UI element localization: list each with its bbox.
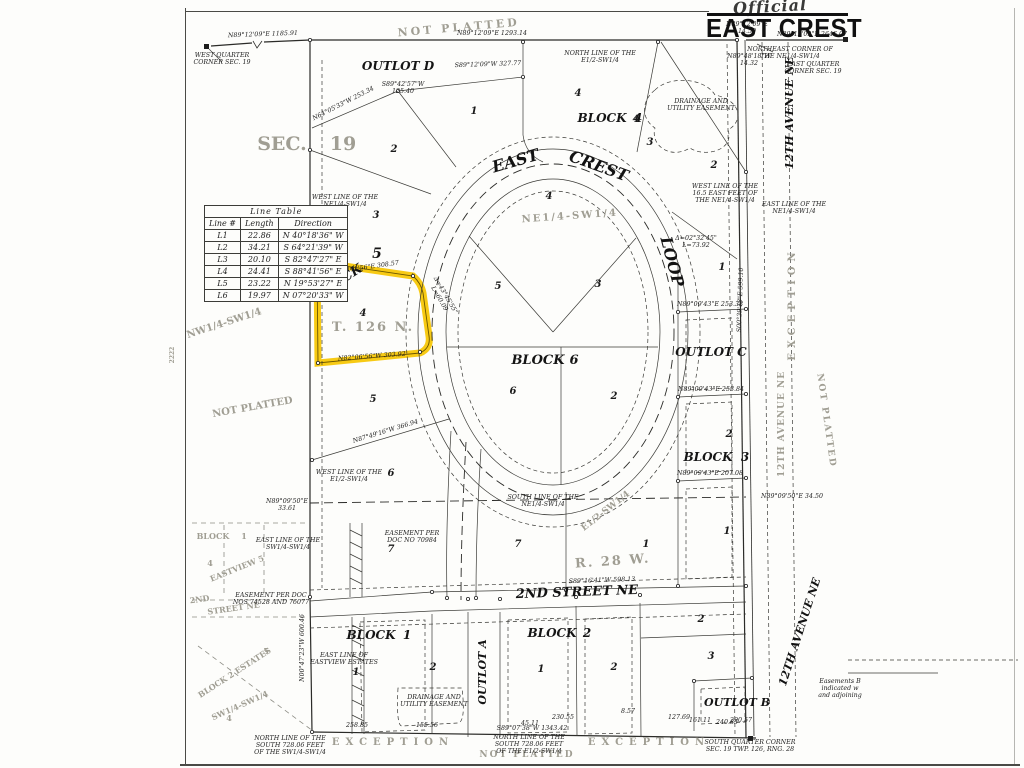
bearing: 127.69 bbox=[668, 714, 690, 721]
lot-number: 4 bbox=[575, 88, 582, 99]
sheet-edge-bottom bbox=[180, 764, 1020, 766]
block-1-label: BLOCK bbox=[345, 628, 396, 642]
note-east-quarter-corner: EAST QUARTERCORNER SEC. 19 bbox=[784, 61, 841, 75]
line-table-header: Direction bbox=[278, 218, 348, 230]
block-3-label: BLOCK bbox=[682, 450, 733, 464]
bearing: 230.55 bbox=[551, 714, 574, 721]
wm-r28w: R. 28 W. bbox=[575, 551, 651, 571]
line-table-cell: L1 bbox=[205, 230, 241, 242]
line-table-row: L122.86N 40°18'36" W bbox=[205, 230, 348, 242]
wm-19: 19 bbox=[330, 133, 356, 155]
line-table-cell: S 82°47'27" E bbox=[278, 254, 348, 266]
wm-sw14-4: 4 bbox=[226, 713, 232, 723]
lot-number: 4 bbox=[546, 191, 553, 202]
outlot-a-label: OUTLOT A bbox=[476, 639, 489, 705]
block-4-label: BLOCK bbox=[576, 111, 627, 125]
wm-t126n: T. 126 N. bbox=[332, 320, 414, 335]
bearing: N89°09'43"E 253.84 bbox=[677, 386, 744, 393]
note-easement-70984: EASEMENT PERDOC NO 70984 bbox=[384, 530, 440, 544]
wm-12th-avenue-ne-gray: 12TH AVENUE NE bbox=[777, 371, 787, 477]
bearing: Δ=02°32'45"L=73.92 bbox=[674, 235, 717, 249]
wm-not-platted-left: NOT PLATTED bbox=[212, 395, 294, 420]
lot-number: 1 bbox=[719, 262, 726, 273]
street-2nd-street-ne: 2ND STREET NE bbox=[514, 583, 639, 602]
outlot-d-label: OUTLOT D bbox=[362, 59, 435, 73]
bearing: S89°12'09"W 327.77 bbox=[455, 60, 522, 69]
wm-ne14-sw14: NE1/4-SW1/4 bbox=[521, 208, 618, 226]
bearing: 258.85 bbox=[345, 722, 368, 729]
line-table-cell: L2 bbox=[205, 242, 241, 254]
lot-number: 4 bbox=[360, 308, 367, 319]
line-table-cell: 22.86 bbox=[241, 230, 279, 242]
wm-2222: 2222 bbox=[169, 347, 176, 364]
line-table-title-row: Line Table bbox=[205, 206, 348, 218]
lot-number: 1 bbox=[724, 526, 731, 537]
outlot-c-label: OUTLOT C bbox=[675, 345, 747, 359]
line-table-cell: L3 bbox=[205, 254, 241, 266]
bearing: N64°05'33"W 253.34 bbox=[311, 85, 376, 122]
lot-number: 2 bbox=[710, 160, 718, 171]
block-1-number: 1 bbox=[403, 628, 411, 642]
note-east-line-eastview: EAST LINE OFEASTVIEW ESTATES bbox=[309, 652, 379, 666]
lot-number: 5 bbox=[370, 394, 377, 405]
line-table-cell: 34.21 bbox=[241, 242, 279, 254]
line-table-cell: 23.22 bbox=[241, 278, 279, 290]
street-centerlines bbox=[310, 164, 746, 600]
lot-number: 2 bbox=[610, 662, 618, 673]
line-table-cell: S 88°41'56" E bbox=[278, 266, 348, 278]
note-west-quarter-corner: WEST QUARTERCORNER SEC. 19 bbox=[193, 52, 250, 66]
block-2-number: 2 bbox=[582, 626, 591, 640]
line-table-header-row: Line #LengthDirection bbox=[205, 218, 348, 230]
bearing: N89°09'43"E 207.08 bbox=[676, 470, 743, 477]
note-west-line-165: WEST LINE OF THE16.5 EAST FEET OFTHE NE1… bbox=[692, 183, 759, 204]
line-table-row: L619.97N 07°20'33" W bbox=[205, 290, 348, 302]
block-2-label: BLOCK bbox=[526, 626, 577, 640]
wm-e12-sw14: E1/2-SW1/4 bbox=[580, 489, 633, 533]
bearing: S89°42'57"W125.40 bbox=[382, 81, 425, 95]
lot-number: 3 bbox=[595, 279, 602, 290]
lot-number: 5 bbox=[495, 281, 502, 292]
bearing: N89°09'50"E 34.50 bbox=[760, 493, 823, 500]
wm-eastview-4: 4 bbox=[207, 558, 213, 568]
plat-title: EAST CREST bbox=[706, 13, 862, 44]
lot-number: 2 bbox=[429, 662, 437, 673]
bearing: N00°47'23"W 600.46 bbox=[299, 614, 306, 683]
wm-2nd: 2ND bbox=[189, 593, 210, 606]
line-table-row: L234.21S 64°21'39" W bbox=[205, 242, 348, 254]
wm-exception-bottom-right: EXCEPTION bbox=[588, 737, 710, 748]
line-table-row: L523.22N 19°53'27" E bbox=[205, 278, 348, 290]
note-drainage-top: DRAINAGE ANDUTILITY EASEMENT bbox=[667, 98, 736, 112]
bearing: 290.57 bbox=[729, 717, 752, 724]
bearing: N89°09'50"E33.61 bbox=[265, 498, 308, 512]
street-12th-avenue-ne-bottom: 12TH AVENUE NE bbox=[776, 576, 823, 688]
bearing: 155.56 bbox=[416, 722, 438, 729]
note-south-quarter-corner: SOUTH QUARTER CORNERSEC. 19 TWP. 126, RN… bbox=[704, 739, 795, 753]
block-5-number: 5 bbox=[372, 246, 382, 262]
bearing: 8.57 bbox=[621, 708, 635, 715]
wm-exception-right: EXCEPTION bbox=[787, 247, 798, 360]
lot-number: 4 bbox=[633, 114, 640, 125]
note-easement-74528: EASEMENT PER DOCNOS 74528 AND 76077 bbox=[232, 592, 309, 606]
block-6-label: BLOCK bbox=[510, 353, 565, 368]
line-table-cell: N 40°18'36" W bbox=[278, 230, 348, 242]
wm-block-1-number: 1 bbox=[241, 531, 247, 541]
line-table-cell: S 64°21'39" W bbox=[278, 242, 348, 254]
line-table-row: L424.41S 88°41'56" E bbox=[205, 266, 348, 278]
bearing: 161.11 bbox=[689, 717, 711, 724]
wm-sw14-sw14: SW1/4-SW1/4 bbox=[210, 688, 270, 722]
line-table-header: Length bbox=[241, 218, 279, 230]
line-table-cell: 24.41 bbox=[241, 266, 279, 278]
line-table-cell: 19.97 bbox=[241, 290, 279, 302]
note-south-line-ne14: SOUTH LINE OF THENE1/4-SW1/4 bbox=[507, 494, 578, 508]
note-west-line-e12: WEST LINE OF THEE1/2-SW1/4 bbox=[316, 469, 383, 483]
line-table-row: L320.10S 82°47'27" E bbox=[205, 254, 348, 266]
wm-block-1: BLOCK bbox=[197, 531, 231, 541]
line-table: Line TableLine #LengthDirectionL122.86N … bbox=[204, 205, 348, 302]
bearing: N89°09'43"E 253.38 bbox=[676, 301, 743, 308]
lot-number: 6 bbox=[388, 468, 395, 479]
bearing: N89°12'09"E 1185.91 bbox=[227, 30, 298, 39]
block-3-number: 3 bbox=[741, 450, 749, 464]
line-table-cell: 20.10 bbox=[241, 254, 279, 266]
lot-number: 1 bbox=[538, 664, 545, 675]
line-table-cell: N 19°53'27" E bbox=[278, 278, 348, 290]
lot-number: 2 bbox=[697, 614, 705, 625]
line-table-cell: L5 bbox=[205, 278, 241, 290]
sheet-edge-top bbox=[185, 11, 709, 12]
line-table-cell: N 07°20'33" W bbox=[278, 290, 348, 302]
wm-estates-5: 5 bbox=[263, 646, 269, 656]
bearing: S00°39'18"E 599.10 bbox=[736, 267, 745, 332]
note-easements-edge: Easements Bindicated wand adjoining bbox=[818, 678, 862, 699]
line-table-header: Line # bbox=[205, 218, 241, 230]
lot-number: 3 bbox=[708, 651, 715, 662]
lot-number: 1 bbox=[353, 667, 360, 678]
note-drainage-bottom: DRAINAGE ANDUTILITY EASEMENT bbox=[400, 694, 469, 708]
lot-number: 1 bbox=[643, 539, 650, 550]
wm-eastview: EASTVIEW 5 bbox=[208, 553, 265, 584]
line-table-cell: L6 bbox=[205, 290, 241, 302]
bearing: N89°12'09"E 1293.14 bbox=[456, 30, 527, 37]
lot-number: 6 bbox=[510, 386, 517, 397]
wm-exception-bottom-left: EXCEPTION bbox=[332, 737, 454, 748]
line-table-cell: L4 bbox=[205, 266, 241, 278]
wm-sec: SEC. bbox=[257, 133, 307, 155]
lot-number: 3 bbox=[373, 210, 380, 221]
note-north-line: NORTH LINE OF THEE1/2-SW1/4 bbox=[563, 50, 636, 64]
bearing: 45.11 bbox=[520, 720, 539, 727]
bearing: N89°48'18"W14.32 bbox=[726, 53, 771, 67]
plat-drawing: EASTCRESTLOOP2ND STREET NE12TH AVENUE NE… bbox=[0, 0, 1024, 768]
lot-number: 1 bbox=[471, 106, 478, 117]
plat-map-scan: Official EAST CREST Line TableLine #Leng… bbox=[0, 0, 1024, 768]
block-6-number: 6 bbox=[569, 353, 578, 368]
wm-nw14-sw14: NW1/4-SW1/4 bbox=[185, 306, 263, 341]
outlot-b-label: OUTLOT B bbox=[704, 696, 770, 709]
bearing: Δ=43°45'55"L=60.09 bbox=[425, 275, 458, 319]
lot-number: 2 bbox=[390, 144, 398, 155]
lot-number: 2 bbox=[610, 391, 618, 402]
wm-not-platted-right: NOT PLATTED bbox=[814, 373, 837, 469]
note-north-line-south-72806-e12: NORTH LINE OF THESOUTH 728.06 FEETOF THE… bbox=[492, 734, 565, 755]
note-east-line-ne14: EAST LINE OF THENE1/4-SW1/4 bbox=[761, 201, 827, 215]
note-east-line-sw14: EAST LINE OF THESW1/4-SW1/4 bbox=[255, 537, 321, 551]
lot-number: 7 bbox=[515, 539, 522, 550]
bearing: N87°49'16"W 366.94 bbox=[351, 418, 419, 445]
line-table-title: Line Table bbox=[205, 206, 348, 218]
lot-number: 2 bbox=[725, 429, 733, 440]
sheet-edge-left bbox=[185, 8, 186, 766]
lot-number: 7 bbox=[388, 544, 395, 555]
street-crest: CREST bbox=[567, 146, 632, 185]
lot-number: 3 bbox=[647, 137, 654, 148]
sheet-edge-right bbox=[1014, 8, 1015, 766]
note-north-line-south-72806-sw: NORTH LINE OF THESOUTH 728.06 FEETOF THE… bbox=[253, 735, 326, 756]
setback-easement-lines bbox=[310, 42, 1018, 737]
